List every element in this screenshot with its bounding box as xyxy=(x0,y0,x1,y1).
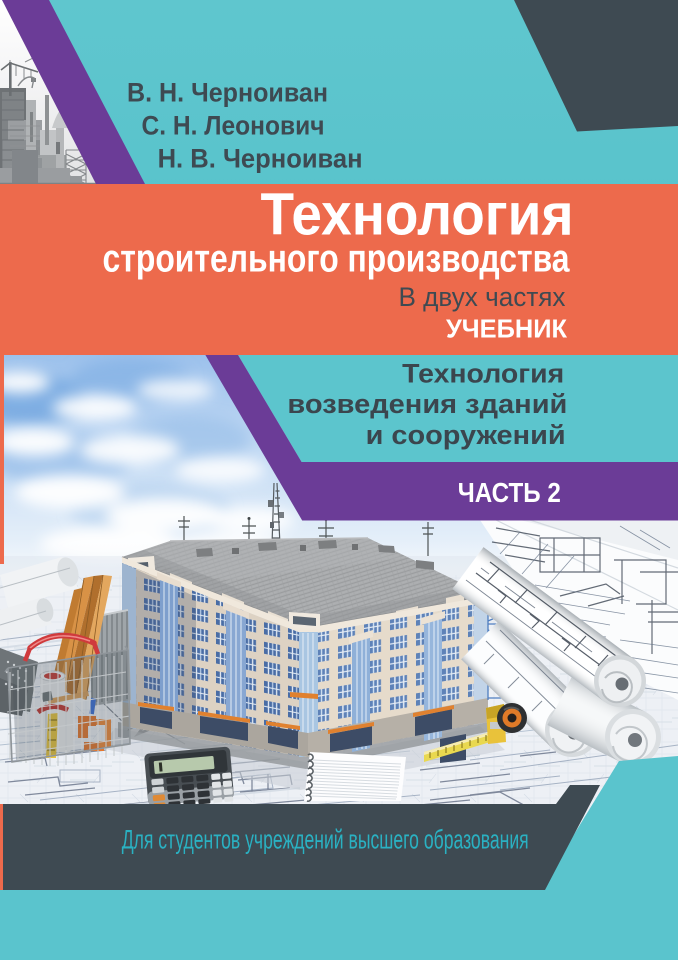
svg-text:строительного производства: строительного производства xyxy=(103,238,570,281)
svg-text:ЧАСТЬ 2: ЧАСТЬ 2 xyxy=(458,477,561,508)
svg-text:Технология: Технология xyxy=(402,358,564,388)
svg-text:возведения зданий: возведения зданий xyxy=(287,389,567,419)
svg-text:Для студентов учреждений высше: Для студентов учреждений высшего образов… xyxy=(122,825,529,855)
svg-text:В. Н. Черноиван: В. Н. Черноиван xyxy=(127,78,328,108)
svg-text:УЧЕБНИК: УЧЕБНИК xyxy=(446,316,567,344)
svg-text:С. Н. Леонович: С. Н. Леонович xyxy=(142,111,325,141)
svg-text:В двух частях: В двух частях xyxy=(399,282,566,312)
svg-text:Н. В. Черноиван: Н. В. Черноиван xyxy=(158,144,363,174)
svg-text:и сооружений: и сооружений xyxy=(366,420,566,450)
